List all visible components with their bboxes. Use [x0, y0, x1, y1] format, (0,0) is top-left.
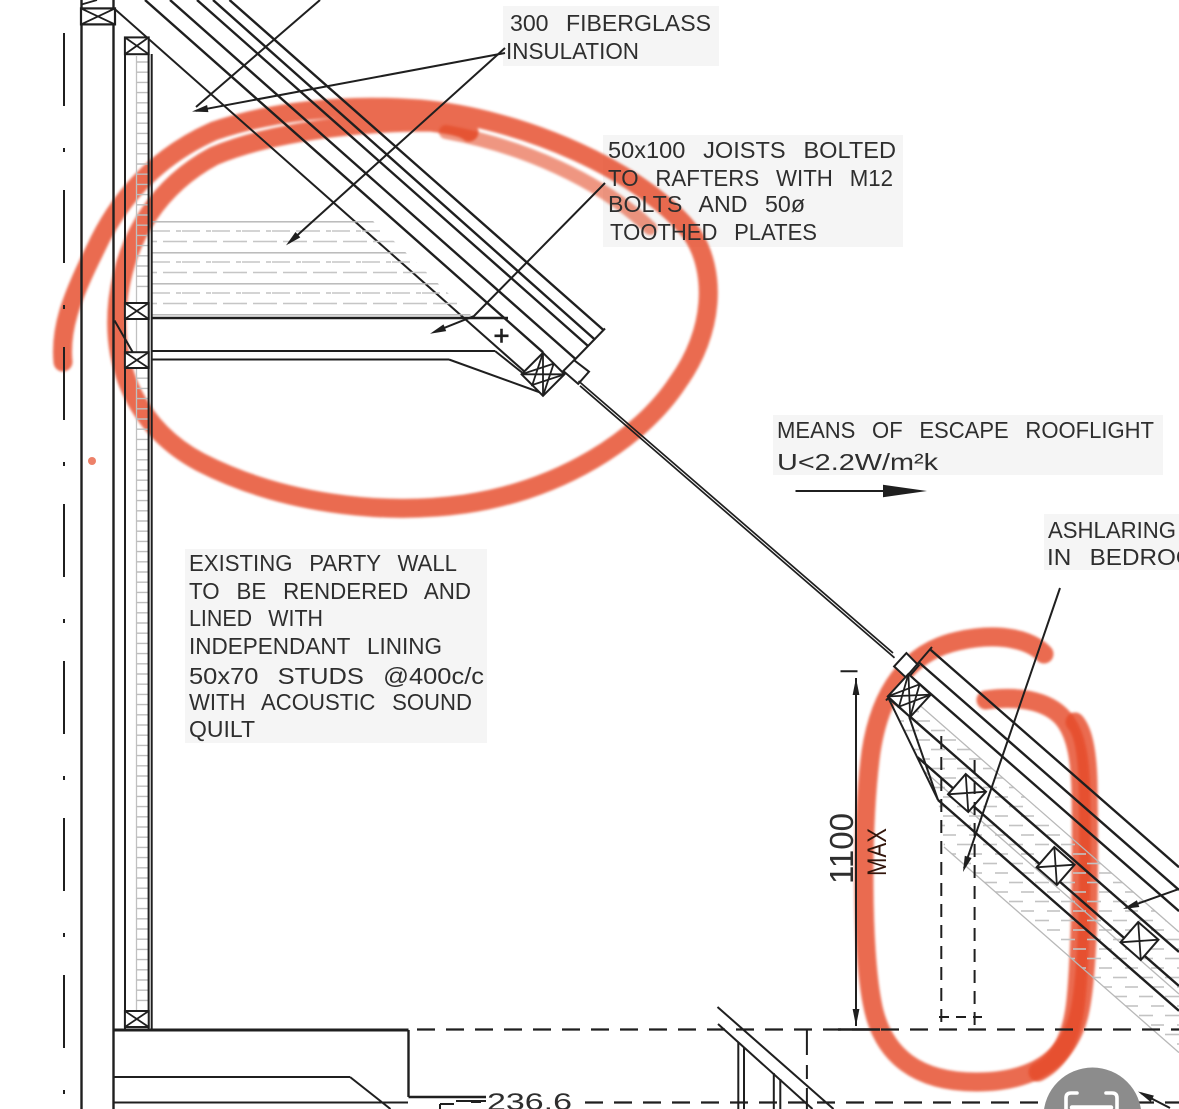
svg-text:TO RAFTERS WITH M12: TO RAFTERS WITH M12 [608, 165, 893, 191]
svg-text:TO BE RENDERED AND: TO BE RENDERED AND [189, 578, 471, 604]
svg-text:300 FIBERGLASS: 300 FIBERGLASS [510, 10, 711, 36]
svg-text:QUILT: QUILT [189, 716, 255, 742]
svg-text:U<2.2W/m²k: U<2.2W/m²k [777, 449, 939, 475]
svg-text:50x70 STUDS @400c/c: 50x70 STUDS @400c/c [189, 663, 484, 689]
svg-text:EXISTING PARTY WALL: EXISTING PARTY WALL [189, 550, 457, 576]
svg-text:INDEPENDANT LINING: INDEPENDANT LINING [189, 633, 442, 659]
svg-text:WITH ACOUSTIC SOUND: WITH ACOUSTIC SOUND [189, 689, 472, 715]
svg-text:50x100 JOISTS BOLTED: 50x100 JOISTS BOLTED [608, 137, 896, 163]
svg-text:LINED WITH: LINED WITH [189, 605, 323, 631]
svg-text:MAX: MAX [862, 828, 892, 876]
svg-text:ASHLARING: ASHLARING [1048, 517, 1176, 543]
svg-text:TOOTHED PLATES: TOOTHED PLATES [610, 219, 817, 245]
svg-text:1100: 1100 [823, 813, 860, 884]
svg-text:236.6: 236.6 [487, 1089, 572, 1109]
svg-text:INSULATION: INSULATION [506, 38, 639, 64]
svg-text:BOLTS AND 50ø: BOLTS AND 50ø [608, 191, 805, 217]
svg-text:IN BEDROOM: IN BEDROOM [1047, 544, 1179, 570]
svg-text:MEANS OF ESCAPE ROOFLIGHT: MEANS OF ESCAPE ROOFLIGHT [777, 417, 1154, 443]
